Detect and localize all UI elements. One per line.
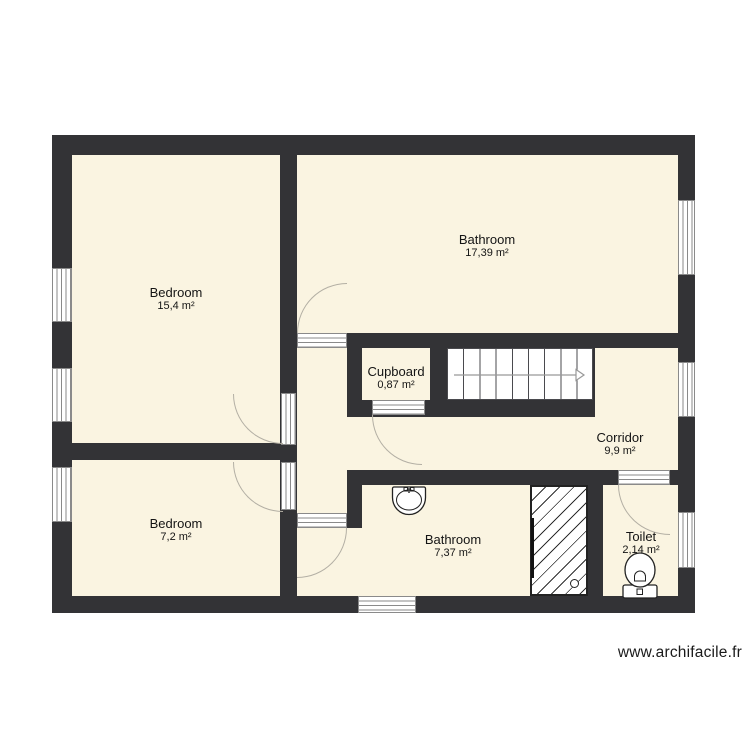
room-floor-corridor[interactable] <box>595 348 678 470</box>
floor-plan: Bedroom 15,4 m² Bathroom 17,39 m² Cupboa… <box>0 0 750 750</box>
room-floor-cupboard[interactable] <box>362 348 430 400</box>
staircase[interactable] <box>447 348 593 400</box>
door-bedroom2[interactable] <box>281 462 296 510</box>
window-bathroom1[interactable] <box>678 200 695 275</box>
shower-tray[interactable] <box>530 485 588 596</box>
room-floor-corridor[interactable] <box>297 348 347 513</box>
shower-drain-icon <box>570 579 579 588</box>
window-corridor[interactable] <box>678 362 695 417</box>
door-bathroom1[interactable] <box>297 333 347 348</box>
watermark-link[interactable]: www.archifacile.fr <box>618 644 742 662</box>
window-bathroom2[interactable] <box>358 596 416 613</box>
door-bedroom1[interactable] <box>281 393 296 445</box>
stairs-direction-arrow-icon <box>448 349 594 401</box>
door-bathroom2[interactable] <box>297 513 347 528</box>
shower-door <box>531 518 534 578</box>
window-bedroom1-upper[interactable] <box>52 268 72 322</box>
door-toilet[interactable] <box>618 470 670 485</box>
window-bedroom2[interactable] <box>52 467 72 522</box>
toilet-icon[interactable] <box>619 551 661 599</box>
sink-icon[interactable] <box>391 486 427 517</box>
door-cupboard[interactable] <box>372 400 425 415</box>
room-floor-bathroom1[interactable] <box>297 155 678 333</box>
window-toilet[interactable] <box>678 512 695 568</box>
window-bedroom1-lower[interactable] <box>52 368 72 422</box>
